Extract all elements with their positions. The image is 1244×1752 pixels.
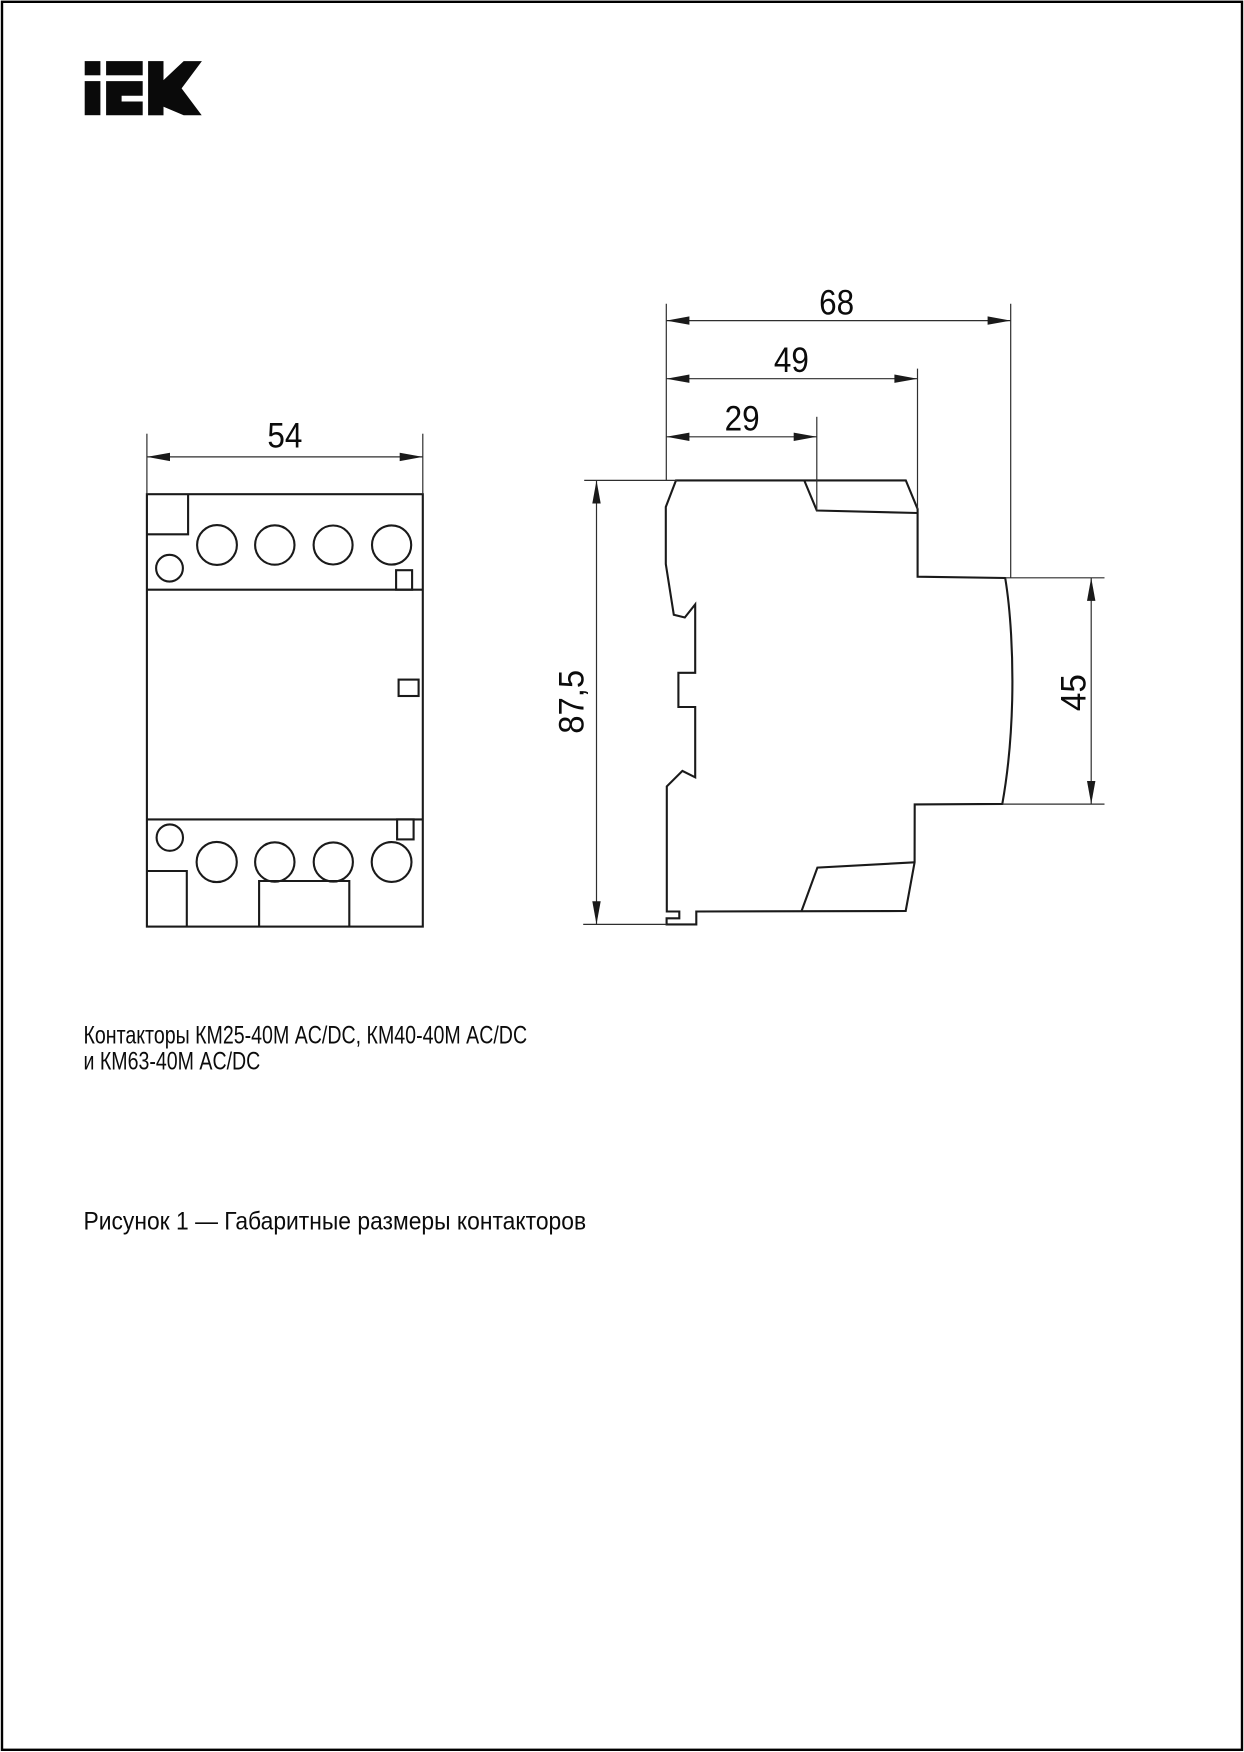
svg-text:Рисунок 1 — Габаритные размеры: Рисунок 1 — Габаритные размеры контактор…	[84, 1208, 587, 1236]
svg-text:Контакторы КМ25-40М AC/DC, КМ4: Контакторы КМ25-40М AC/DC, КМ40-40М AC/D…	[84, 1022, 528, 1050]
svg-text:54: 54	[267, 416, 302, 455]
svg-text:68: 68	[819, 283, 854, 322]
svg-text:29: 29	[725, 399, 760, 438]
svg-text:87,5: 87,5	[553, 670, 592, 734]
svg-text:45: 45	[1054, 674, 1093, 711]
svg-text:и КМ63-40М AC/DC: и КМ63-40М AC/DC	[84, 1047, 261, 1075]
svg-text:49: 49	[774, 341, 809, 380]
